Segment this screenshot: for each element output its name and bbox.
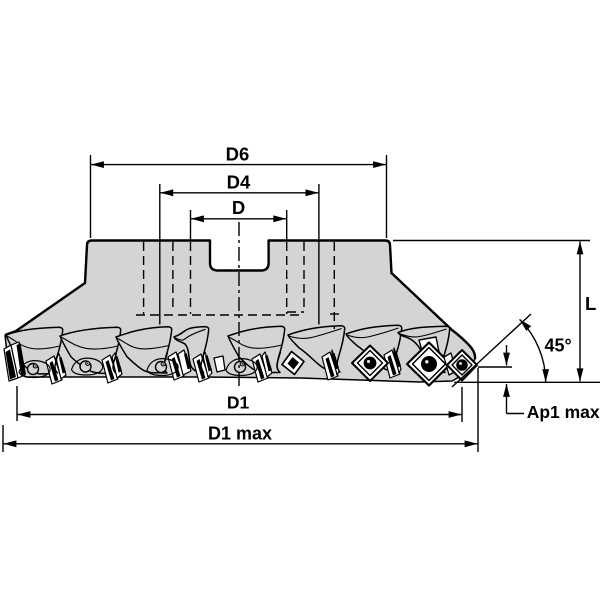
svg-text:L: L	[585, 293, 596, 314]
svg-text:D: D	[232, 197, 245, 218]
svg-text:D6: D6	[226, 144, 250, 165]
svg-text:Ap1 max: Ap1 max	[527, 402, 600, 422]
svg-text:45°: 45°	[545, 335, 572, 355]
svg-text:D1 max: D1 max	[208, 424, 272, 444]
svg-text:D1: D1	[227, 393, 250, 413]
svg-text:D4: D4	[227, 171, 251, 192]
